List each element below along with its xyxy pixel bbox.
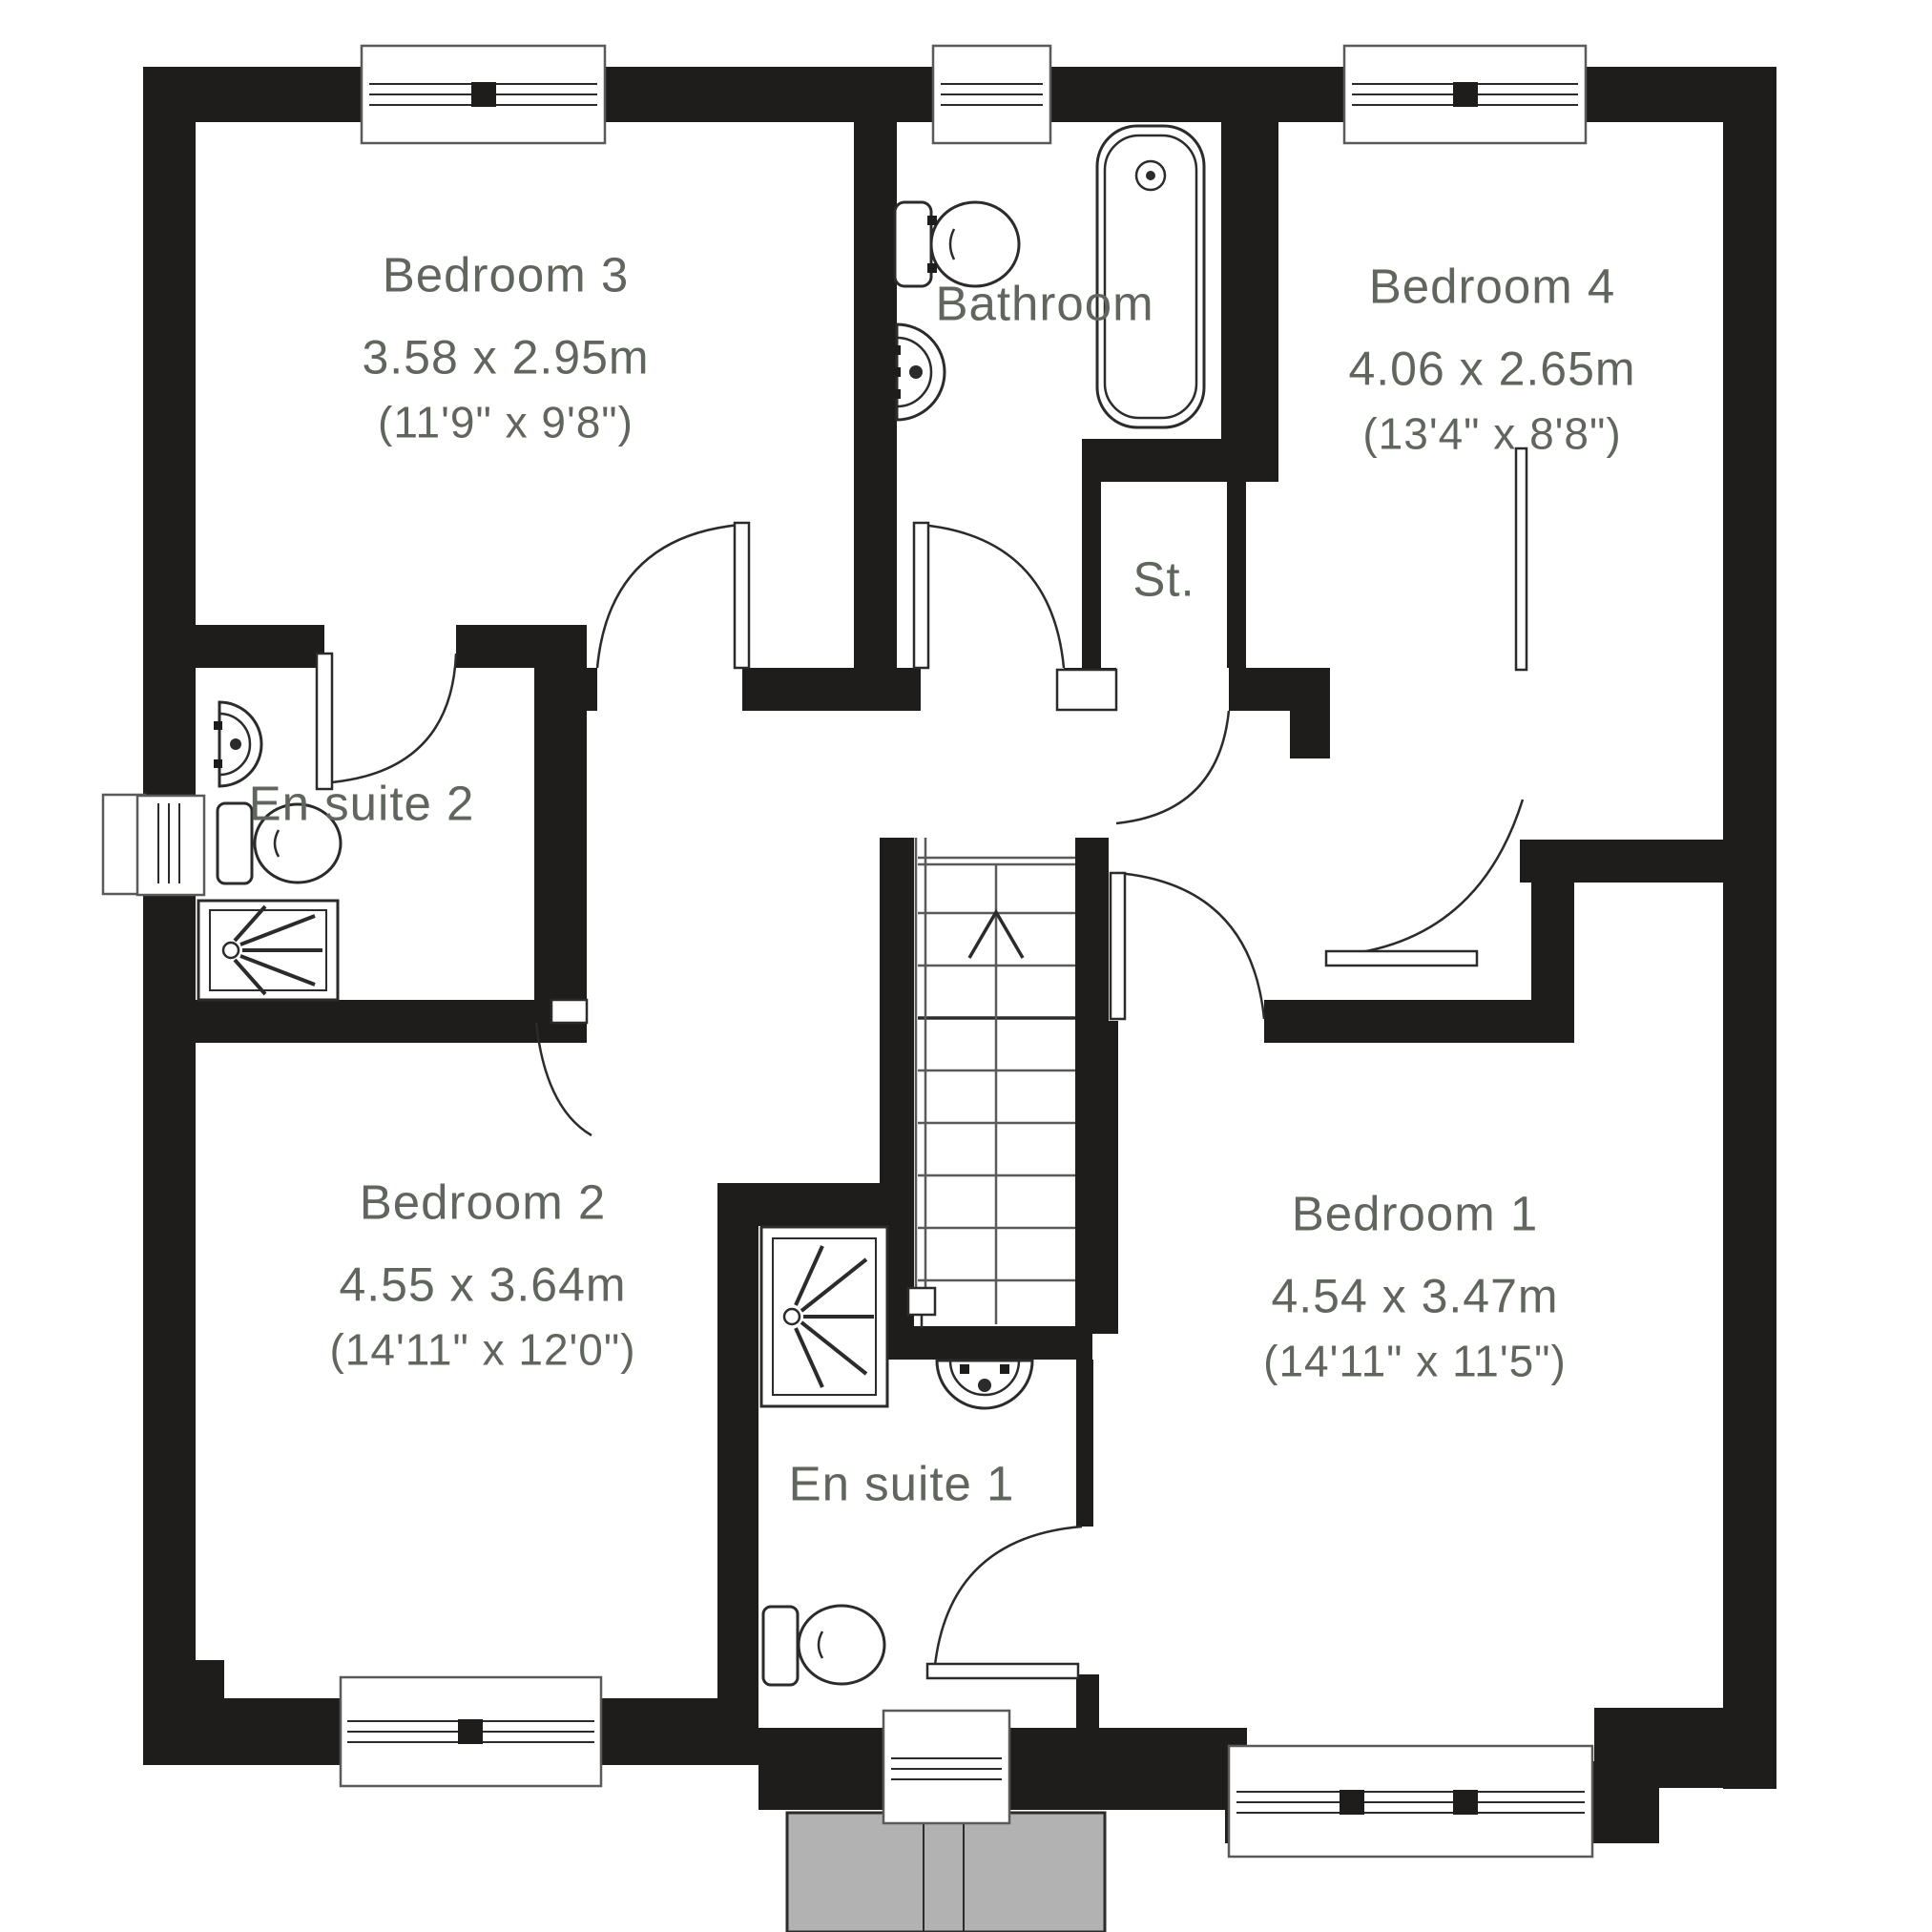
wall <box>196 1000 551 1043</box>
room-dims-m: 4.06 x 2.65m <box>1348 345 1635 393</box>
room-name: Bathroom <box>935 280 1153 328</box>
window-mullion <box>1453 82 1478 107</box>
wall <box>1520 840 1776 883</box>
door-leaf-bedroom2 <box>551 1000 587 1023</box>
room-name: Bedroom 2 <box>329 1178 635 1227</box>
room-label-bedroom-1: Bedroom 1 4.54 x 3.47m (14'11" x 11'5") <box>1263 1190 1567 1383</box>
room-label-bedroom-2: Bedroom 2 4.55 x 3.64m (14'11" x 12'0") <box>329 1178 635 1372</box>
wall <box>880 1326 1092 1360</box>
plan-graphic <box>927 216 937 225</box>
room-dims-imp: (14'11" x 11'5") <box>1263 1340 1567 1383</box>
door-leaf-bedroom3 <box>735 523 749 668</box>
wall <box>742 668 921 711</box>
wall <box>1076 1674 1099 1761</box>
plan-graphic <box>960 1364 969 1374</box>
room-dims-imp: (11'9" x 9'8") <box>362 401 649 445</box>
toilet-bowl-bathroom <box>931 202 1019 286</box>
sink-drain <box>230 738 241 750</box>
wall <box>1531 883 1574 1000</box>
sink-drain <box>909 365 923 379</box>
door-leaf-bathroom <box>914 523 928 668</box>
wall <box>1082 439 1278 482</box>
room-label-storage: St. <box>1132 555 1195 604</box>
toilet-bowl-ensuite1 <box>799 1606 884 1684</box>
room-name: Bedroom 1 <box>1263 1190 1567 1238</box>
wall <box>1229 668 1330 711</box>
room-dims-imp: (13'4" x 8'8") <box>1348 412 1635 456</box>
room-label-ensuite-2: En suite 2 <box>249 779 475 828</box>
room-label-bathroom: Bathroom <box>935 280 1153 328</box>
door-arc-bedroom4 <box>1330 800 1523 956</box>
wall <box>1290 711 1330 758</box>
hall-screen-line <box>1516 448 1527 670</box>
wall <box>1075 838 1109 1021</box>
door-arc-ensuite2 <box>332 654 456 782</box>
room-label-bedroom-3: Bedroom 3 3.58 x 2.95m (11'9" x 9'8") <box>362 251 649 445</box>
porch-canopy <box>787 1813 1105 1932</box>
wall <box>1082 482 1101 668</box>
room-dims-m: 4.54 x 3.47m <box>1263 1273 1567 1320</box>
bath-fitting <box>1165 93 1190 118</box>
window-mullion <box>1340 1790 1364 1815</box>
toilet-cistern-ensuite2 <box>218 803 252 883</box>
plan-graphic <box>214 721 222 730</box>
wall <box>1723 67 1776 1789</box>
plan-graphic <box>214 759 222 768</box>
door-arc-storage <box>1116 711 1229 823</box>
toilet-cistern-bathroom <box>895 202 931 286</box>
wall <box>1227 482 1246 668</box>
window-mullion <box>1453 1790 1478 1815</box>
room-name: St. <box>1132 555 1195 604</box>
door-arc-bedroom1 <box>1118 873 1264 1019</box>
room-label-bedroom-4: Bedroom 4 4.06 x 2.65m (13'4" x 8'8") <box>1348 262 1635 456</box>
sink-drain <box>978 1379 991 1392</box>
door-arc-ensuite1 <box>934 1527 1082 1674</box>
toilet-cistern-ensuite1 <box>763 1607 798 1685</box>
room-name: En suite 2 <box>249 779 475 828</box>
window-mullion <box>471 82 496 107</box>
wall <box>854 122 897 668</box>
wall <box>196 625 324 668</box>
plan-graphic <box>891 367 901 377</box>
wall <box>717 1183 758 1765</box>
room-label-ensuite-1: En suite 1 <box>789 1460 1015 1508</box>
door-arc-bedroom3 <box>597 525 740 668</box>
room-name: Bedroom 4 <box>1348 262 1635 311</box>
door-leaf-bedroom4 <box>1326 951 1477 966</box>
door-leaf-storage <box>1057 670 1116 710</box>
window-ensuite2 <box>137 796 204 895</box>
room-name: En suite 1 <box>789 1460 1015 1508</box>
wall <box>1076 1360 1093 1527</box>
door-leaf-ensuite1 <box>927 1664 1078 1678</box>
wall <box>456 625 534 668</box>
plan-graphic <box>891 345 901 355</box>
wall <box>534 625 587 1043</box>
door-leaf-bedroom1 <box>1111 873 1125 1019</box>
wall <box>1075 1021 1118 1334</box>
plan-graphic <box>1000 1364 1009 1374</box>
wall <box>1221 122 1278 482</box>
plan-graphic <box>891 389 901 399</box>
wall <box>717 1183 887 1226</box>
stair-newel <box>908 1288 935 1315</box>
window-ensuite1 <box>883 1711 1009 1823</box>
room-dims-m: 3.58 x 2.95m <box>362 334 649 382</box>
plan-graphic <box>927 263 937 273</box>
wall <box>1594 1708 1776 1788</box>
door-leaf-ensuite2 <box>317 654 332 789</box>
wall <box>1264 1000 1574 1043</box>
room-dims-imp: (14'11" x 12'0") <box>329 1328 635 1372</box>
bathtub-tap-dot <box>1146 171 1155 180</box>
door-arc-bathroom <box>921 525 1064 668</box>
window-mullion <box>458 1719 483 1744</box>
room-dims-m: 4.55 x 3.64m <box>329 1261 635 1309</box>
bath-fitting <box>1102 93 1127 118</box>
floorplan: Bedroom 3 3.58 x 2.95m (11'9" x 9'8") Ba… <box>0 0 1932 1932</box>
room-name: Bedroom 3 <box>362 251 649 300</box>
